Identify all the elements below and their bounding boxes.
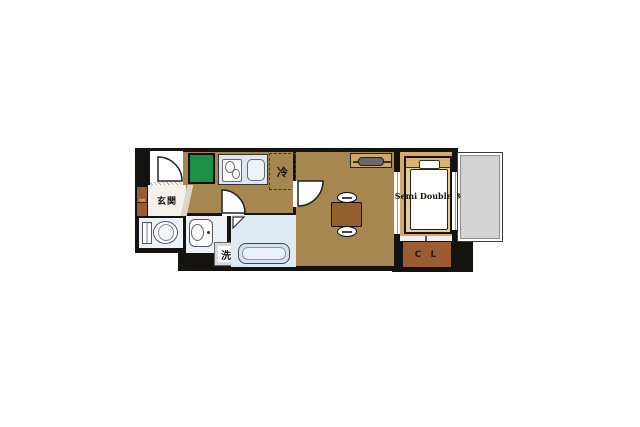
bathtub-icon [238, 243, 290, 264]
refrigerator-label: 冷 [277, 164, 288, 180]
bathroom [231, 215, 296, 267]
main-room-door-swing-icon [292, 179, 326, 209]
shoe-box: SB [136, 186, 148, 217]
entrance-door-swing-icon [150, 151, 183, 184]
shoe-box-shelf-line [137, 202, 147, 203]
entrance-label: 玄関 [157, 194, 177, 207]
bedroom-window-icon [452, 172, 457, 230]
kitchen-counter [218, 154, 268, 185]
bathroom-door-icon [232, 216, 246, 230]
chair-icon [337, 226, 357, 237]
floor-plan: 玄関 SB 洗 [0, 0, 640, 427]
dining-table-icon [331, 202, 362, 227]
washbasin-bowl [191, 224, 204, 241]
faucet-dot-icon [207, 231, 210, 234]
toilet-tank-icon [142, 222, 152, 244]
closet-box: C L [402, 241, 452, 268]
kitchen-sink-icon [247, 159, 265, 181]
stove-burner-icon [232, 169, 240, 179]
air-conditioner-icon [350, 153, 392, 168]
toilet-bowl-inner [158, 224, 174, 241]
bathtub-inner [242, 247, 286, 260]
washroom-door-swing-icon [220, 188, 247, 215]
entrance-door-alcove [150, 151, 183, 184]
closet-label: C L [415, 250, 439, 260]
ac-body [358, 157, 384, 166]
balcony-floor [460, 155, 500, 239]
washing-machine-label: 洗 [221, 247, 231, 262]
toilet-room [139, 218, 183, 248]
meter-box [188, 153, 215, 184]
pillow-icon [419, 160, 440, 169]
bed-size-label: Semi Double ※ [398, 190, 458, 202]
entrance-hall: 玄関 [148, 185, 186, 216]
balcony [457, 152, 503, 242]
